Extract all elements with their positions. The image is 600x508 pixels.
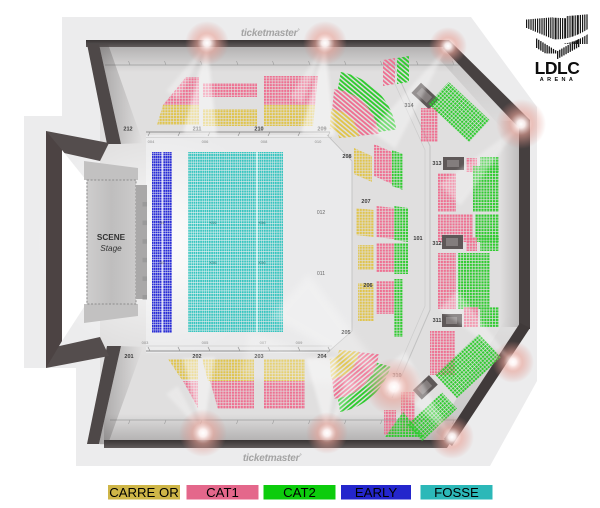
svg-text:313: 313 bbox=[432, 161, 441, 167]
svg-text:005: 005 bbox=[202, 340, 209, 345]
svg-text:312: 312 bbox=[432, 241, 441, 247]
svg-text:EARLY: EARLY bbox=[355, 485, 397, 500]
svg-text:311: 311 bbox=[433, 318, 442, 324]
svg-text:D1: D1 bbox=[159, 220, 165, 225]
svg-text:210: 210 bbox=[254, 127, 263, 133]
svg-text:FOSSE: FOSSE bbox=[434, 485, 479, 500]
svg-text:CAT1: CAT1 bbox=[206, 485, 239, 500]
svg-text:008: 008 bbox=[261, 139, 268, 144]
svg-text:208: 208 bbox=[342, 154, 351, 160]
svg-text:003: 003 bbox=[142, 340, 149, 345]
svg-text:207: 207 bbox=[361, 199, 370, 205]
svg-text:ticketmaster°: ticketmaster° bbox=[243, 453, 303, 464]
svg-text:ARENA: ARENA bbox=[540, 77, 577, 83]
svg-text:K56: K56 bbox=[209, 220, 217, 225]
svg-text:CARRE OR: CARRE OR bbox=[109, 485, 179, 500]
svg-text:SCENE: SCENE bbox=[97, 233, 126, 242]
svg-text:006: 006 bbox=[202, 139, 209, 144]
svg-text:004: 004 bbox=[148, 139, 155, 144]
svg-text:009: 009 bbox=[296, 340, 303, 345]
svg-text:CAT2: CAT2 bbox=[283, 485, 316, 500]
svg-text:K56: K56 bbox=[209, 260, 217, 265]
svg-text:LDLC: LDLC bbox=[535, 58, 581, 78]
svg-text:012: 012 bbox=[317, 210, 326, 216]
svg-text:K56: K56 bbox=[258, 260, 266, 265]
svg-text:206: 206 bbox=[363, 283, 372, 289]
svg-text:K56: K56 bbox=[258, 220, 266, 225]
svg-text:011: 011 bbox=[317, 271, 325, 277]
svg-text:D2: D2 bbox=[159, 260, 165, 265]
svg-text:Stage: Stage bbox=[100, 244, 122, 253]
svg-text:010: 010 bbox=[315, 139, 322, 144]
svg-text:ticketmaster°: ticketmaster° bbox=[241, 28, 301, 39]
svg-text:101: 101 bbox=[413, 236, 422, 242]
